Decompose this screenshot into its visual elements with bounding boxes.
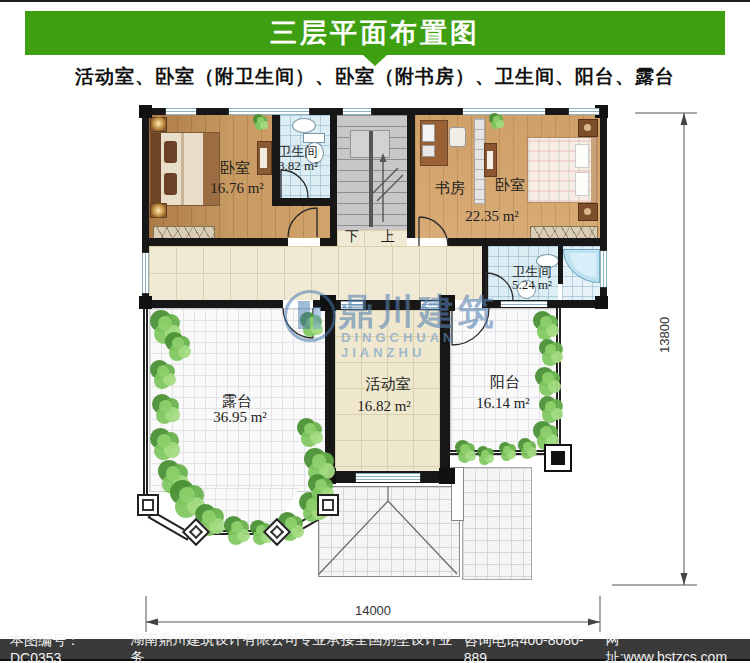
plant-cluster bbox=[253, 114, 270, 131]
label-bedroom-right: 卧室 bbox=[485, 176, 535, 195]
room-summary-subtitle: 活动室、卧室（附卫生间）、卧室（附书房）、卫生间、阳台、露台 bbox=[0, 64, 750, 90]
bed-right-headboard bbox=[591, 138, 596, 202]
pillar-corner-bl bbox=[139, 296, 152, 309]
sink-top-bath bbox=[292, 118, 316, 133]
bathtub-inner bbox=[570, 253, 596, 277]
activity-window-top-right bbox=[420, 301, 440, 309]
dim-arrow-bottom-left bbox=[146, 619, 158, 626]
nightstand-top-left bbox=[150, 117, 167, 132]
lower-roof-right bbox=[462, 467, 532, 580]
dim-height-label: 13800 bbox=[657, 305, 672, 365]
wall-stair-right bbox=[407, 108, 415, 238]
activity-pillar-tr bbox=[439, 295, 455, 311]
bed-right bbox=[527, 137, 597, 203]
bed-left-pillow-2 bbox=[164, 173, 177, 195]
nightstand-top-right bbox=[578, 119, 598, 137]
plant-cluster bbox=[152, 394, 184, 426]
footer-bar: 本图编号：DC0353 湖南鼎川建筑设计有限公司专业承接全国别墅设计业务 咨询电… bbox=[0, 639, 750, 661]
monitor bbox=[422, 124, 435, 142]
terrace-rail-left bbox=[143, 308, 148, 496]
plant-cluster bbox=[300, 312, 326, 338]
footer-website: 网址:www.bstzcs.com bbox=[606, 631, 740, 663]
printer bbox=[422, 145, 435, 157]
terrace-post-left bbox=[137, 494, 159, 516]
corridor-floor bbox=[149, 246, 482, 300]
plant-cluster bbox=[150, 428, 184, 462]
bed-left-fold bbox=[181, 133, 184, 205]
plant-cluster bbox=[489, 113, 506, 130]
lamp bbox=[584, 124, 591, 131]
footer-phone: 咨询电话400-8080-889 bbox=[464, 632, 606, 663]
balcony-corner-post-core bbox=[551, 451, 565, 465]
dim-arrow-right-top bbox=[681, 113, 688, 125]
tv bbox=[487, 151, 493, 169]
window-top-4 bbox=[568, 108, 600, 115]
plant-cluster bbox=[165, 332, 195, 362]
dim-line-right bbox=[612, 113, 697, 585]
bed-left-pillow-1 bbox=[164, 141, 177, 163]
label-activity: 活动室 bbox=[348, 375, 428, 394]
label-bathroom-top-area: 3.82 m² bbox=[273, 158, 323, 174]
label-activity-area: 16.82 m² bbox=[344, 398, 424, 415]
balcony-corner-post bbox=[544, 444, 572, 472]
lamp-glow bbox=[151, 203, 166, 218]
lower-roof bbox=[318, 486, 460, 577]
dim-arrow-bottom-right bbox=[588, 619, 600, 626]
label-stair-up: 上 bbox=[380, 228, 396, 246]
pillar-corner-br bbox=[595, 296, 608, 309]
lamp-glow bbox=[151, 116, 166, 131]
dim-width-label: 14000 bbox=[333, 603, 413, 618]
footer-plan-number: 本图编号：DC0353 bbox=[10, 632, 130, 663]
corridor-window-south bbox=[500, 301, 548, 307]
wall-bath-mid-left bbox=[482, 246, 488, 308]
plant-cluster bbox=[535, 367, 565, 397]
window-top-bath bbox=[342, 108, 372, 115]
page-title: 三层平面布置图 bbox=[270, 15, 480, 51]
pillar-corner-tl bbox=[139, 105, 152, 118]
desk-study bbox=[420, 120, 448, 166]
activity-window-bottom bbox=[355, 473, 421, 482]
stair-stringer bbox=[369, 131, 373, 227]
wall-rooms-bottom-1 bbox=[142, 238, 288, 246]
tv-cabinet bbox=[484, 143, 497, 177]
wall-bath-top-bottom bbox=[272, 198, 337, 206]
plant-cluster bbox=[539, 339, 567, 367]
bed-left-headboard bbox=[151, 133, 161, 205]
label-stair-down: 下 bbox=[344, 228, 360, 246]
activity-wall-right bbox=[440, 300, 450, 483]
label-bedroom-left: 卧室 bbox=[210, 159, 260, 178]
plant-cluster bbox=[499, 442, 519, 462]
chair-study bbox=[449, 127, 466, 147]
plant-cluster bbox=[533, 311, 563, 341]
nightstand-bottom-left bbox=[150, 203, 167, 218]
wall-stair-left bbox=[330, 108, 337, 238]
label-bathroom-mid-area: 5.24 m² bbox=[497, 277, 567, 293]
terrace-post-right bbox=[317, 494, 339, 516]
window-top-1 bbox=[165, 108, 197, 115]
plant-cluster bbox=[518, 438, 540, 460]
label-bedroom-right-area: 22.35 m² bbox=[452, 208, 532, 225]
wall-rooms-bottom-2 bbox=[320, 238, 337, 246]
label-balcony-area: 16.14 m² bbox=[463, 395, 543, 412]
dresser-top bbox=[260, 148, 267, 168]
label-terrace-area: 36.95 m² bbox=[200, 409, 280, 426]
wall-corridor-bottom-1 bbox=[142, 300, 283, 308]
plant-cluster bbox=[150, 360, 180, 390]
bed-right-pillow-1 bbox=[575, 144, 589, 168]
bed-right-pillow-2 bbox=[575, 172, 589, 196]
window-left-corridor bbox=[142, 252, 149, 294]
wall-rooms-bottom-3 bbox=[448, 238, 607, 246]
label-bedroom-left-area: 16.76 m² bbox=[197, 180, 277, 197]
activity-window-top-left bbox=[340, 301, 364, 309]
top-edge bbox=[0, 0, 750, 2]
nightstand-bottom-right bbox=[578, 203, 598, 221]
label-study: 书房 bbox=[425, 179, 475, 198]
footer-company: 湖南鼎川建筑设计有限公司专业承接全国别墅设计业务 bbox=[130, 631, 463, 663]
plant-cluster bbox=[477, 446, 497, 466]
lamp bbox=[584, 208, 591, 215]
plant-cluster bbox=[455, 440, 479, 464]
plant-cluster bbox=[539, 396, 567, 424]
dim-arrow-right-bottom bbox=[681, 573, 688, 585]
window-right-tub bbox=[600, 250, 607, 288]
floor-plan-page: 三层平面布置图 活动室、卧室（附卫生间）、卧室（附书房）、卫生间、阳台、露台 bbox=[0, 0, 750, 663]
title-banner: 三层平面布置图 bbox=[25, 11, 725, 55]
activity-pillar-br bbox=[439, 468, 455, 484]
label-balcony: 阳台 bbox=[480, 373, 530, 392]
activity-pillar-tl bbox=[320, 295, 336, 311]
plant-cluster bbox=[297, 418, 327, 448]
